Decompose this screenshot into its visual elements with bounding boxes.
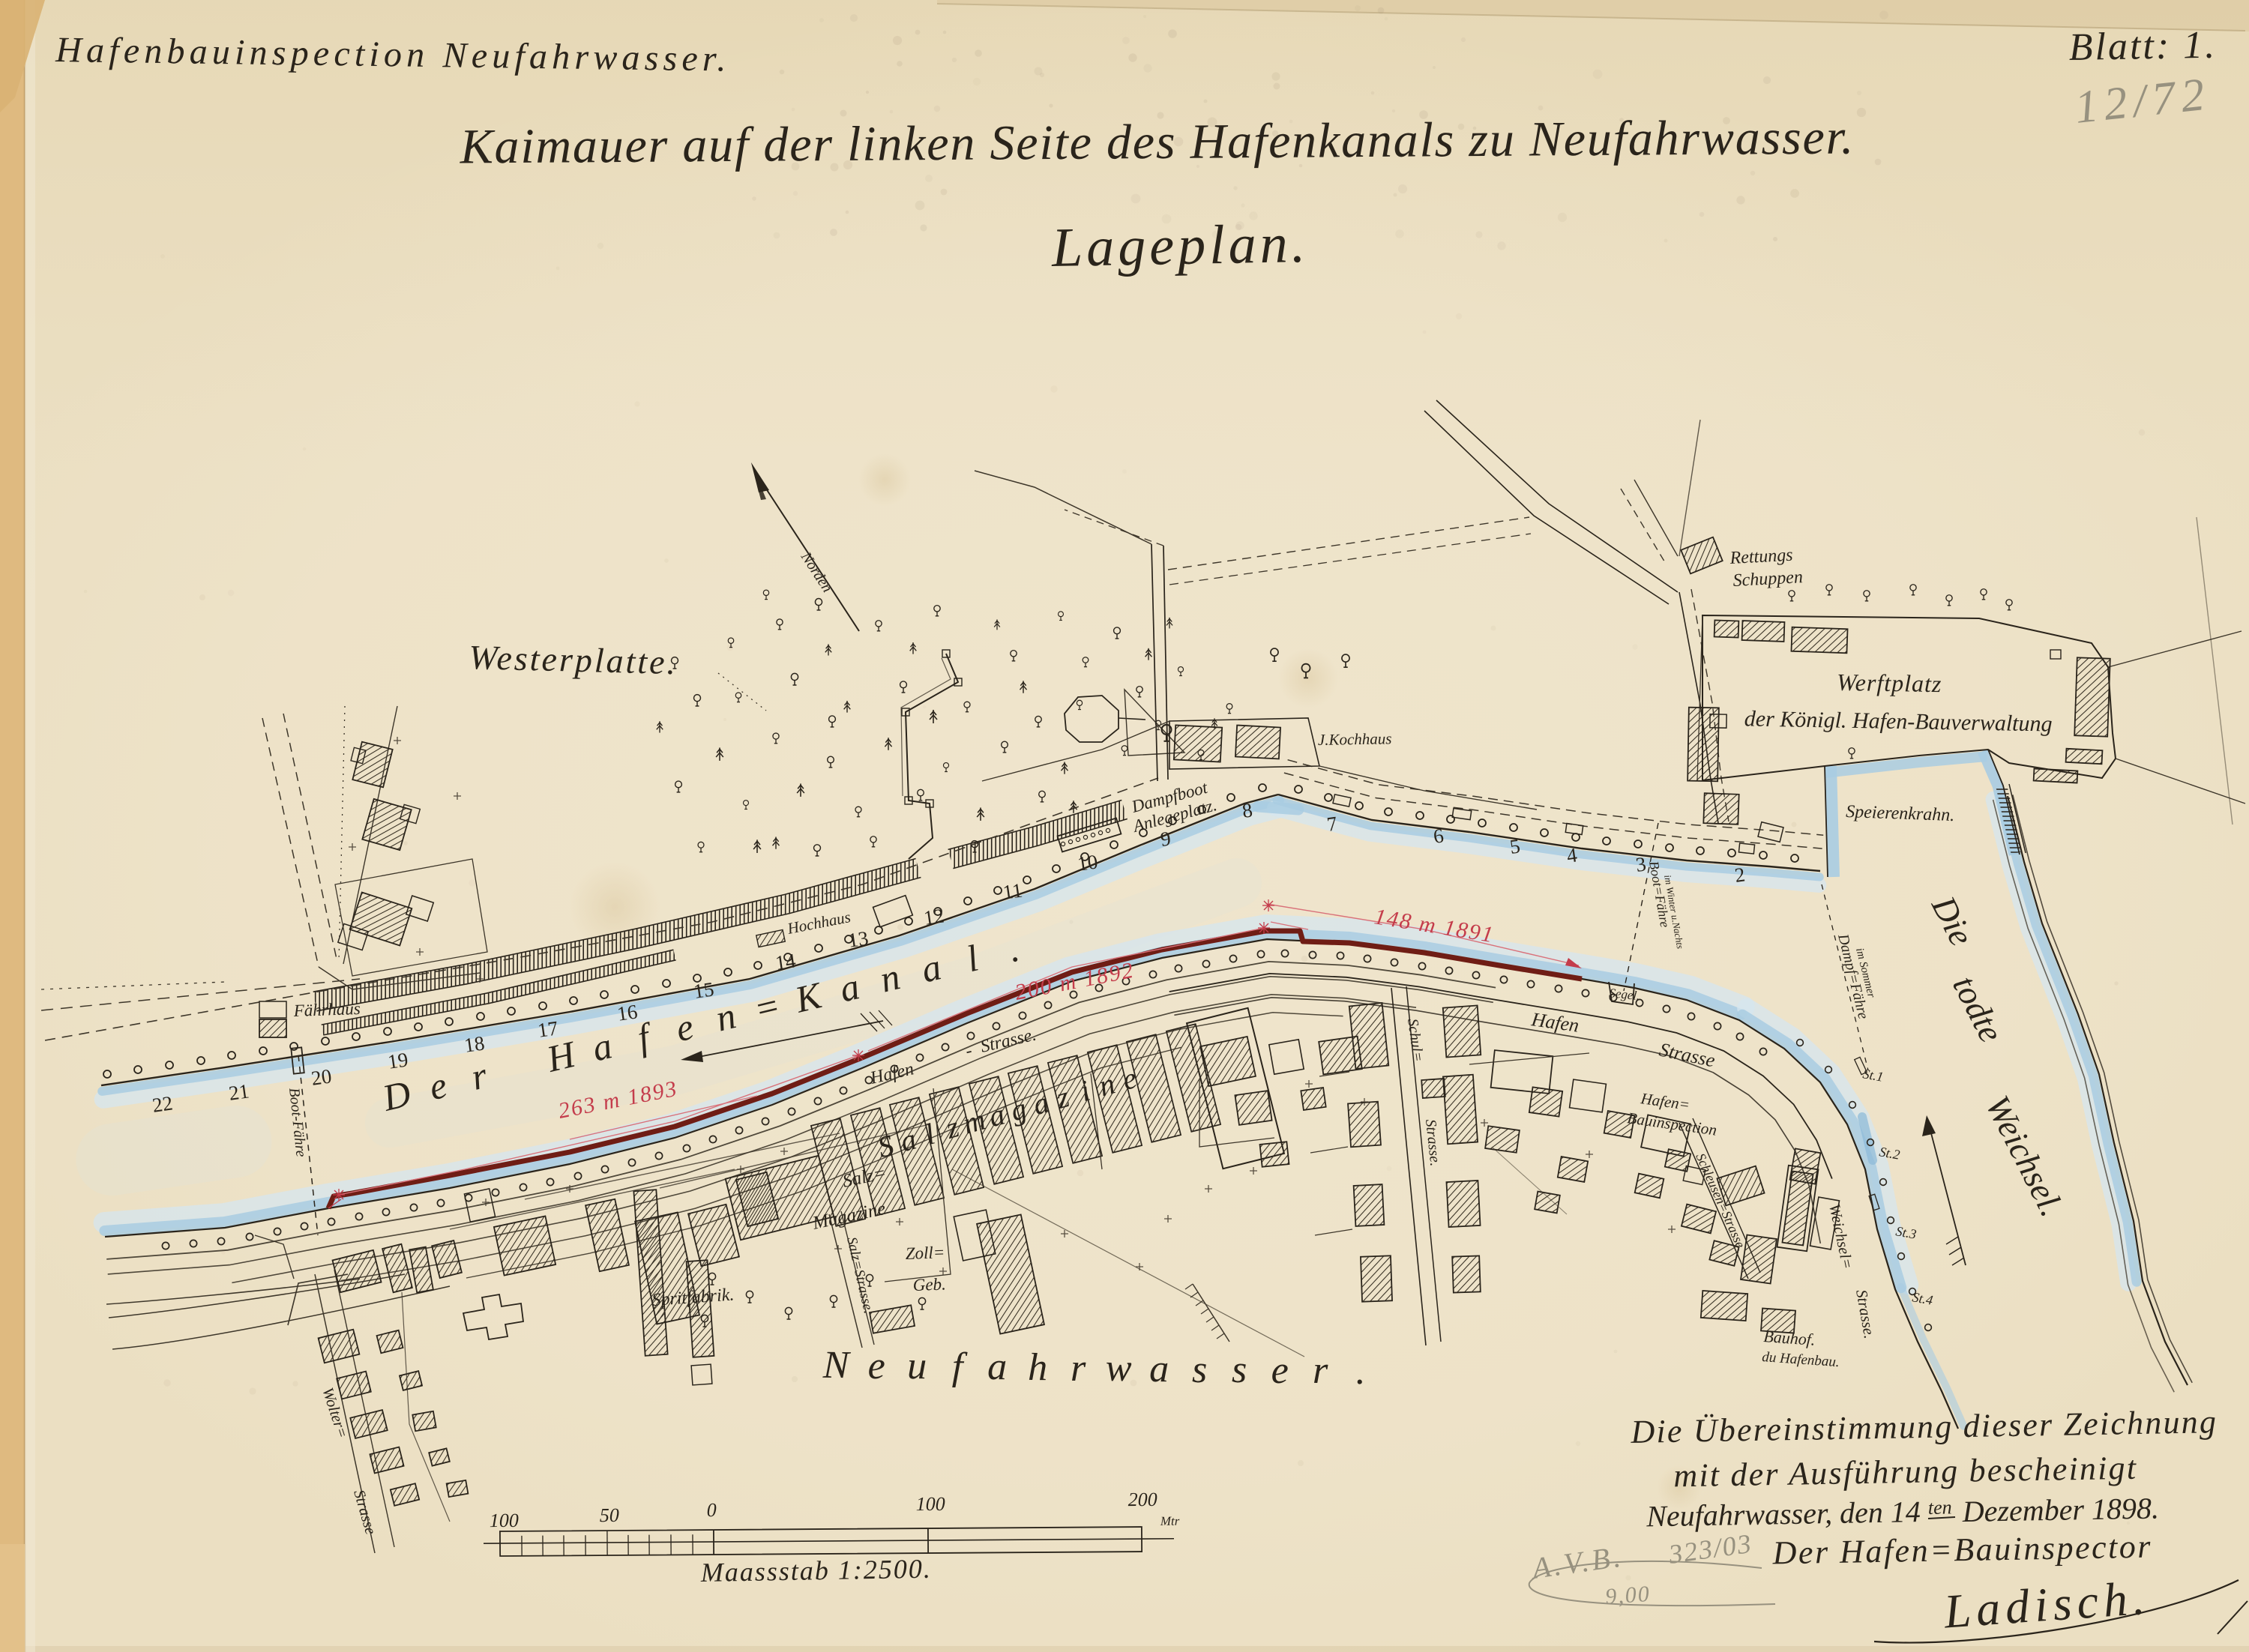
svg-text:15: 15: [692, 977, 715, 1002]
svg-text:Fährhaus: Fährhaus: [292, 999, 361, 1020]
svg-text:Rettungs: Rettungs: [1729, 546, 1793, 568]
svg-text:Schuppen: Schuppen: [1732, 567, 1804, 591]
svg-text:r: r: [1071, 1347, 1087, 1390]
svg-text:Kaimauer auf der linken Seite: Kaimauer auf der linken Seite des Hafenk…: [459, 110, 1855, 175]
svg-text:13: 13: [846, 926, 870, 951]
svg-text:17: 17: [536, 1016, 559, 1041]
svg-text:10: 10: [1076, 850, 1099, 875]
svg-text:Westerplatte.: Westerplatte.: [469, 638, 678, 681]
svg-text:r: r: [1313, 1349, 1329, 1392]
svg-text:Zoll=: Zoll=: [905, 1243, 945, 1263]
svg-text:100: 100: [490, 1510, 519, 1531]
svg-text:.: .: [1355, 1350, 1366, 1393]
svg-text:ten: ten: [1928, 1496, 1952, 1519]
svg-text:a: a: [1149, 1348, 1169, 1390]
svg-text:e: e: [1271, 1349, 1289, 1392]
svg-text:20: 20: [310, 1064, 333, 1089]
svg-text:21: 21: [227, 1079, 250, 1104]
svg-text:s: s: [1232, 1348, 1247, 1391]
svg-text:Maassstab 1:2500.: Maassstab 1:2500.: [699, 1554, 932, 1588]
svg-text:Speierenkrahn.: Speierenkrahn.: [1846, 802, 1955, 825]
svg-text:s: s: [1192, 1348, 1208, 1391]
svg-text:Der Hafen=Bauinspector: Der Hafen=Bauinspector: [1771, 1528, 2152, 1572]
svg-text:Neufahrwasser, den 14: Neufahrwasser, den 14: [1646, 1495, 1921, 1533]
svg-text:Bauhof.: Bauhof.: [1763, 1327, 1816, 1349]
svg-text:w: w: [1106, 1347, 1133, 1390]
svg-text:e: e: [867, 1345, 885, 1387]
svg-text:Blatt: 1.: Blatt: 1.: [2068, 24, 2217, 69]
svg-text:19: 19: [386, 1048, 409, 1073]
svg-text:14: 14: [774, 949, 797, 974]
svg-text:18: 18: [463, 1031, 486, 1056]
svg-text:Dezember 1898.: Dezember 1898.: [1961, 1491, 2159, 1528]
svg-text:N: N: [822, 1344, 852, 1387]
svg-text:h: h: [1028, 1346, 1048, 1389]
svg-text:u: u: [907, 1345, 927, 1387]
svg-text:50: 50: [600, 1504, 619, 1526]
svg-text:Lageplan.: Lageplan.: [1050, 213, 1309, 279]
svg-text:11: 11: [1002, 878, 1024, 903]
svg-text:22: 22: [151, 1091, 174, 1116]
svg-text:100: 100: [916, 1493, 945, 1515]
svg-text:16: 16: [615, 1000, 639, 1025]
svg-text:0: 0: [707, 1499, 717, 1521]
svg-text:J.Kochhaus: J.Kochhaus: [1318, 729, 1392, 749]
svg-text:12: 12: [922, 904, 945, 929]
svg-text:Mtr: Mtr: [1160, 1514, 1180, 1528]
svg-text:Werftplatz: Werftplatz: [1837, 669, 1942, 697]
svg-text:a: a: [987, 1345, 1008, 1388]
svg-text:200: 200: [1128, 1489, 1157, 1510]
